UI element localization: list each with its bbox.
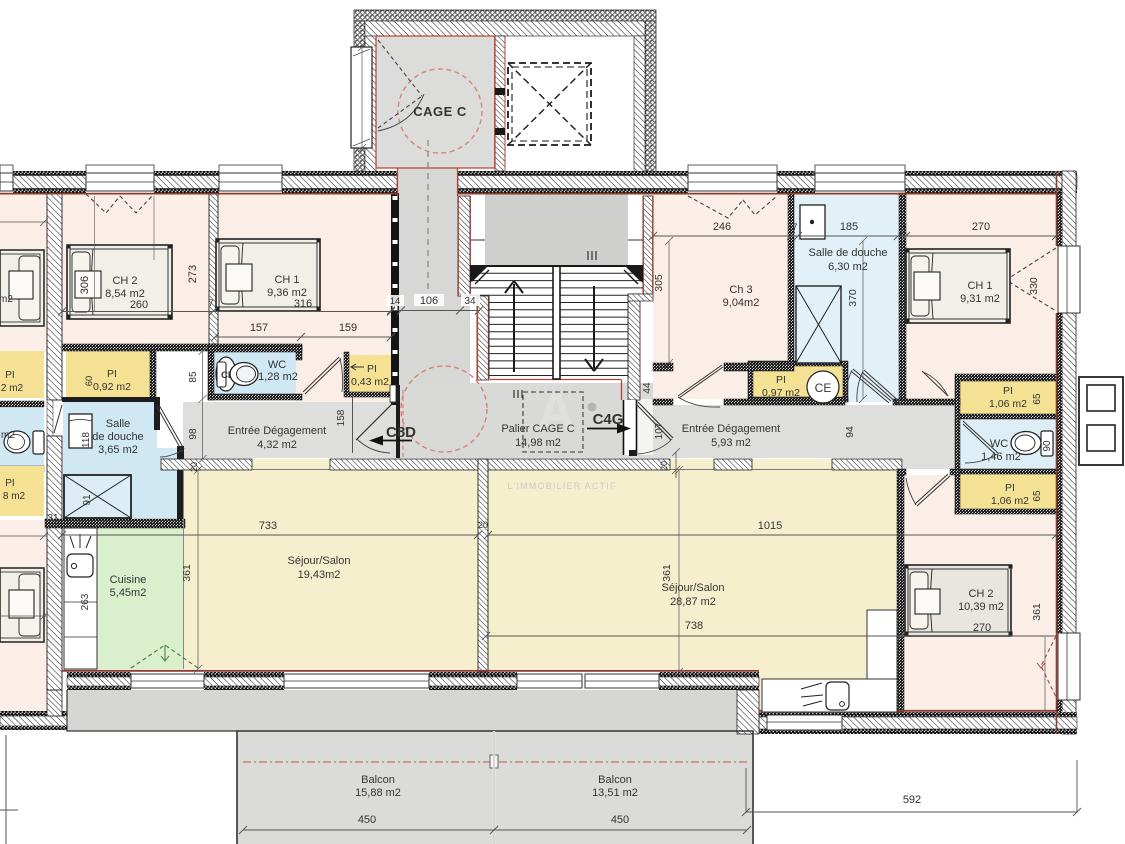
svg-text:60: 60: [84, 376, 95, 387]
svg-text:7: 7: [208, 298, 213, 308]
svg-text:361: 361: [181, 564, 193, 582]
svg-text:PI: PI: [107, 368, 117, 380]
svg-text:5,45m2: 5,45m2: [110, 587, 147, 599]
svg-text:107: 107: [654, 422, 665, 439]
svg-text:65: 65: [1032, 490, 1043, 502]
svg-text:306: 306: [79, 276, 91, 294]
svg-text:738: 738: [685, 620, 703, 632]
svg-text:94: 94: [844, 426, 856, 438]
svg-text:Cuisine: Cuisine: [110, 574, 147, 586]
svg-text:370: 370: [847, 289, 859, 307]
svg-text:7: 7: [665, 362, 670, 372]
svg-text:20: 20: [189, 462, 199, 472]
svg-text:85: 85: [188, 371, 199, 383]
svg-text:3,65 m2: 3,65 m2: [98, 444, 138, 456]
svg-text:361: 361: [1031, 603, 1043, 621]
svg-text:1,06 m2: 1,06 m2: [989, 398, 1027, 410]
svg-text:20: 20: [478, 520, 488, 530]
svg-text:733: 733: [259, 520, 277, 532]
svg-text:20: 20: [659, 461, 669, 471]
svg-text:CH 2: CH 2: [112, 275, 137, 287]
svg-text:361: 361: [661, 564, 673, 582]
svg-text:L'IMMOBILIER ACTIF: L'IMMOBILIER ACTIF: [507, 481, 616, 491]
svg-text:65: 65: [1032, 393, 1043, 405]
svg-text:PI: PI: [5, 478, 14, 489]
svg-text:Séjour/Salon: Séjour/Salon: [288, 555, 351, 567]
svg-text:Séjour/Salon: Séjour/Salon: [662, 582, 725, 594]
svg-text:PI: PI: [367, 363, 377, 375]
svg-text:98: 98: [188, 428, 199, 440]
svg-text:305: 305: [653, 274, 665, 292]
svg-text:592: 592: [903, 794, 921, 806]
svg-text:270: 270: [972, 221, 990, 233]
svg-text:Balcon: Balcon: [361, 774, 395, 786]
svg-text:Ch 3: Ch 3: [729, 284, 752, 296]
svg-text:0,43 m2: 0,43 m2: [351, 376, 389, 388]
svg-text:44: 44: [642, 382, 653, 394]
svg-text:330: 330: [1028, 277, 1040, 295]
svg-text:1,28 m2: 1,28 m2: [258, 371, 298, 383]
svg-text:C8D: C8D: [386, 424, 416, 441]
svg-text:91: 91: [82, 494, 93, 506]
svg-text:10,39 m2: 10,39 m2: [958, 601, 1004, 613]
svg-text:159: 159: [339, 322, 357, 334]
svg-text:Salle de douche: Salle de douche: [809, 247, 888, 259]
svg-text:PI: PI: [1005, 482, 1015, 494]
svg-text:m2: m2: [1, 430, 15, 441]
svg-text:de douche: de douche: [92, 431, 143, 443]
svg-text:Entrée Dégagement: Entrée Dégagement: [682, 423, 780, 435]
svg-text:263: 263: [80, 593, 91, 610]
svg-text:WC: WC: [268, 359, 286, 371]
svg-text:CAGE C: CAGE C: [413, 104, 467, 119]
svg-text:0,92 m2: 0,92 m2: [93, 381, 131, 393]
svg-text:2 m2: 2 m2: [1, 383, 24, 394]
svg-text:246: 246: [713, 221, 731, 233]
svg-text:9,04m2: 9,04m2: [723, 297, 760, 309]
svg-text:270: 270: [973, 622, 991, 634]
svg-text:9,31 m2: 9,31 m2: [960, 293, 1000, 305]
svg-text:8 m2: 8 m2: [3, 491, 26, 502]
svg-text:CH 2: CH 2: [968, 588, 993, 600]
svg-text:185: 185: [840, 221, 858, 233]
svg-text:Balcon: Balcon: [598, 774, 632, 786]
svg-text:260: 260: [130, 299, 148, 311]
svg-text:PI: PI: [1003, 385, 1013, 397]
svg-text:13,51 m2: 13,51 m2: [592, 787, 638, 799]
svg-text:CH 1: CH 1: [967, 280, 992, 292]
svg-text:WC: WC: [990, 438, 1008, 450]
svg-text:273: 273: [187, 265, 199, 283]
svg-text:15,88 m2: 15,88 m2: [355, 787, 401, 799]
svg-text:118: 118: [81, 432, 92, 448]
svg-text:Salle: Salle: [106, 418, 130, 430]
svg-text:1,06 m2: 1,06 m2: [991, 495, 1029, 507]
svg-text:157: 157: [250, 322, 268, 334]
svg-text:28,87 m2: 28,87 m2: [670, 596, 716, 608]
svg-text:CE: CE: [815, 381, 832, 395]
svg-text:PI: PI: [776, 374, 786, 386]
svg-text:Entrée Dégagement: Entrée Dégagement: [228, 425, 326, 437]
svg-text:4,32 m2: 4,32 m2: [257, 439, 297, 451]
svg-text:316: 316: [294, 298, 312, 310]
svg-text:5,93 m2: 5,93 m2: [711, 437, 751, 449]
svg-text:158: 158: [336, 409, 347, 426]
svg-text:6,30 m2: 6,30 m2: [828, 261, 868, 273]
svg-text:Palier CAGE C: Palier CAGE C: [501, 423, 574, 435]
svg-text:19,43m2: 19,43m2: [298, 569, 341, 581]
svg-text:CH 1: CH 1: [274, 274, 299, 286]
svg-text:m2: m2: [0, 294, 13, 305]
svg-text:31: 31: [47, 513, 59, 524]
svg-text:7: 7: [901, 222, 906, 232]
svg-text:450: 450: [611, 814, 629, 826]
svg-text:PI: PI: [5, 370, 14, 381]
svg-text:7: 7: [792, 222, 797, 232]
svg-text:106: 106: [420, 295, 438, 307]
svg-text:1015: 1015: [758, 520, 782, 532]
svg-text:34: 34: [464, 296, 476, 307]
svg-text:90: 90: [1042, 440, 1053, 452]
svg-text:14: 14: [390, 296, 401, 307]
svg-text:1,46 m2: 1,46 m2: [981, 451, 1021, 463]
svg-text:14,98 m2: 14,98 m2: [515, 437, 561, 449]
svg-text:450: 450: [358, 814, 376, 826]
svg-text:0,97 m2: 0,97 m2: [762, 387, 800, 399]
